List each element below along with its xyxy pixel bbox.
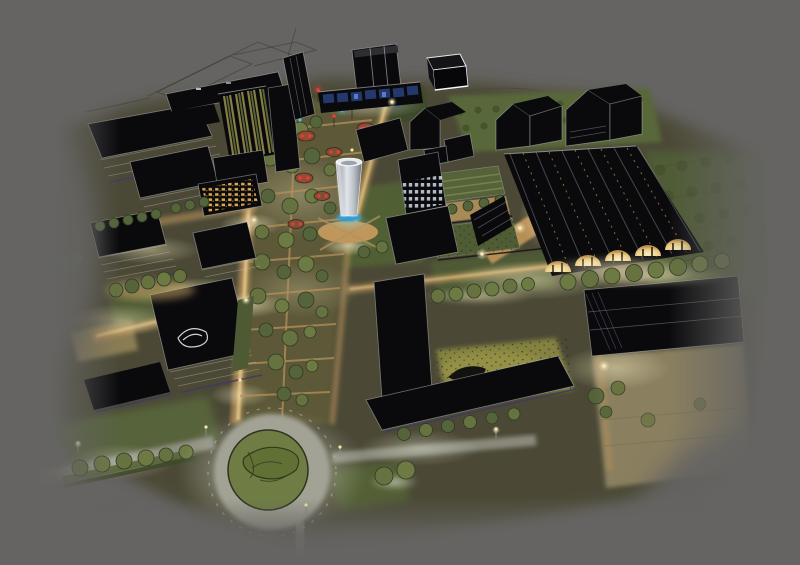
- window-grid-building: [398, 152, 446, 214]
- lamp: [350, 148, 353, 151]
- masterplan-canvas: [0, 0, 800, 565]
- lamp: [598, 360, 610, 372]
- floating-building-sketch: [427, 54, 468, 90]
- lamp: [514, 222, 526, 234]
- masterplan-illustration: [0, 0, 800, 565]
- lamp: [238, 378, 241, 381]
- lamp: [476, 248, 488, 260]
- lamp: [387, 97, 397, 107]
- lamp: [249, 215, 259, 225]
- lamp: [241, 295, 251, 305]
